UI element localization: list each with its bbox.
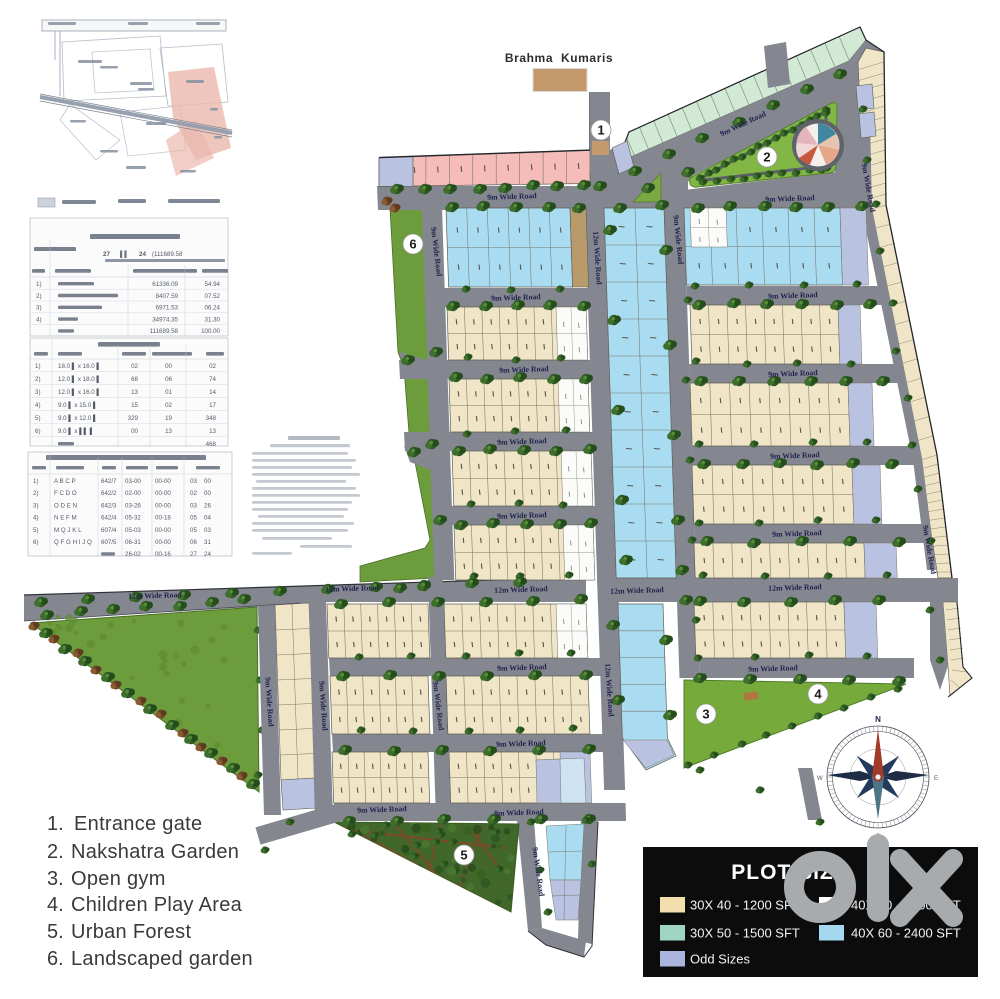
svg-text:00: 00: [204, 478, 211, 485]
svg-text:05-32: 05-32: [125, 515, 141, 522]
svg-text:13: 13: [131, 389, 138, 396]
svg-text:03-26: 03-26: [125, 502, 141, 509]
svg-text:642/2: 642/2: [101, 490, 117, 497]
svg-text:9.0 ▌ x 15.0 ▌: 9.0 ▌ x 15.0 ▌: [58, 401, 97, 409]
svg-text:4): 4): [35, 402, 41, 409]
svg-text:2): 2): [36, 293, 42, 300]
svg-text:4): 4): [36, 316, 42, 323]
svg-text:4.: 4.: [47, 894, 64, 916]
svg-text:12m Wide Road: 12m Wide Road: [610, 585, 664, 596]
svg-text:68: 68: [131, 376, 138, 383]
svg-text:1: 1: [597, 123, 604, 138]
svg-text:03: 03: [204, 527, 211, 534]
svg-text:12m Wide Road: 12m Wide Road: [128, 590, 182, 601]
svg-text:61336.09: 61336.09: [152, 281, 178, 288]
svg-text:01: 01: [165, 389, 172, 396]
svg-text:31: 31: [204, 539, 211, 546]
svg-text:3): 3): [35, 389, 41, 396]
svg-text:27: 27: [190, 551, 197, 558]
svg-text:9m Wide Road: 9m Wide Road: [494, 807, 544, 818]
svg-text:348: 348: [206, 415, 217, 422]
svg-text:15: 15: [131, 402, 138, 409]
svg-text:6: 6: [409, 237, 416, 252]
svg-text:6971.53: 6971.53: [156, 305, 179, 312]
svg-text:3: 3: [702, 707, 709, 722]
svg-text:02: 02: [209, 363, 216, 370]
svg-text:▌▌: ▌▌: [120, 250, 129, 258]
svg-text:O D E N: O D E N: [54, 502, 77, 509]
svg-text:40X 60 - 2400 SFT: 40X 60 - 2400 SFT: [851, 926, 961, 941]
svg-text:24: 24: [204, 551, 211, 558]
svg-text:5: 5: [460, 848, 467, 863]
svg-text:1.: 1.: [47, 813, 64, 835]
svg-text:6): 6): [33, 539, 39, 546]
svg-text:19: 19: [165, 415, 172, 422]
svg-text:329: 329: [128, 415, 139, 422]
svg-text:Open gym: Open gym: [71, 868, 166, 890]
svg-text:05: 05: [190, 527, 197, 534]
svg-text:1): 1): [36, 281, 42, 288]
svg-text:14: 14: [209, 389, 216, 396]
svg-text:Entrance gate: Entrance gate: [74, 813, 202, 835]
svg-text:6): 6): [35, 428, 41, 435]
svg-text:12m Wide Road: 12m Wide Road: [494, 584, 548, 595]
svg-text:Landscaped garden: Landscaped garden: [71, 948, 253, 970]
svg-text:00-18: 00-18: [155, 515, 171, 522]
svg-text:9m Wide Road: 9m Wide Road: [487, 191, 537, 202]
svg-text:(111689.58: (111689.58: [152, 251, 183, 258]
svg-text:9m Wide Road: 9m Wide Road: [357, 804, 407, 815]
svg-text:3.: 3.: [47, 868, 64, 890]
svg-text:100.00: 100.00: [201, 328, 220, 335]
svg-text:Children Play Area: Children Play Area: [71, 894, 243, 916]
svg-text:Odd Sizes: Odd Sizes: [690, 952, 750, 967]
svg-text:A B C P: A B C P: [54, 478, 76, 485]
svg-text:30X 40 - 1200 SFT: 30X 40 - 1200 SFT: [690, 898, 800, 913]
svg-text:9m Wide Road: 9m Wide Road: [748, 663, 798, 674]
svg-text:05: 05: [190, 515, 197, 522]
svg-text:1): 1): [33, 478, 39, 485]
svg-text:00: 00: [165, 363, 172, 370]
svg-text:54.94: 54.94: [205, 281, 221, 288]
svg-text:9m Wide Road: 9m Wide Road: [491, 292, 541, 303]
svg-text:2: 2: [763, 150, 770, 165]
svg-text:03-00: 03-00: [125, 478, 141, 485]
svg-text:W: W: [817, 776, 823, 782]
svg-text:06: 06: [165, 376, 172, 383]
svg-text:9m Wide Road: 9m Wide Road: [497, 662, 547, 673]
svg-text:9m Wide Road: 9m Wide Road: [768, 290, 818, 301]
svg-text:00: 00: [131, 428, 138, 435]
svg-text:Nakshatra Garden: Nakshatra Garden: [71, 841, 239, 863]
svg-text:642/3: 642/3: [101, 502, 117, 509]
svg-text:00-16: 00-16: [155, 551, 171, 558]
svg-text:9m Wide Road: 9m Wide Road: [496, 738, 546, 749]
svg-text:18.0 ▌ x 16.0 ▌: 18.0 ▌ x 16.0 ▌: [58, 362, 101, 370]
svg-text:4: 4: [814, 687, 822, 702]
svg-text:12m Wide Road: 12m Wide Road: [325, 583, 379, 594]
svg-text:06-31: 06-31: [125, 539, 141, 546]
svg-text:5): 5): [35, 415, 41, 422]
svg-text:07.52: 07.52: [205, 293, 221, 300]
svg-text:607/5: 607/5: [101, 539, 117, 546]
svg-text:F C D O: F C D O: [54, 490, 77, 497]
svg-text:642/4: 642/4: [101, 515, 117, 522]
svg-text:17: 17: [209, 402, 216, 409]
svg-text:9.0 ▌ x 12.0 ▌: 9.0 ▌ x 12.0 ▌: [58, 414, 97, 422]
svg-text:00-00: 00-00: [155, 502, 171, 509]
svg-text:Q F G H I J Q: Q F G H I J Q: [54, 539, 92, 546]
svg-text:04: 04: [204, 515, 211, 522]
svg-text:3): 3): [36, 305, 42, 312]
svg-text:13: 13: [165, 428, 172, 435]
svg-text:34974.35: 34974.35: [152, 316, 178, 323]
svg-text:E: E: [934, 776, 938, 782]
svg-text:06: 06: [190, 539, 197, 546]
svg-text:2): 2): [33, 490, 39, 497]
svg-text:N: N: [875, 715, 881, 724]
svg-text:03: 03: [190, 478, 197, 485]
svg-text:27: 27: [103, 251, 110, 258]
svg-text:Brahma Kumaris: Brahma Kumaris: [505, 51, 613, 65]
svg-text:26-02: 26-02: [125, 551, 141, 558]
svg-text:02: 02: [165, 402, 172, 409]
svg-text:26: 26: [204, 502, 211, 509]
svg-text:111689.58: 111689.58: [150, 328, 179, 335]
svg-text:9m Wide Road: 9m Wide Road: [499, 364, 549, 375]
svg-text:12.0 ▌ x 18.0 ▌: 12.0 ▌ x 18.0 ▌: [58, 375, 101, 383]
svg-text:9m Wide Road: 9m Wide Road: [772, 528, 822, 539]
svg-text:02-00: 02-00: [125, 490, 141, 497]
svg-text:9m Wide Road: 9m Wide Road: [497, 510, 547, 521]
svg-text:9m Wide Road: 9m Wide Road: [770, 450, 820, 461]
svg-text:03: 03: [190, 502, 197, 509]
svg-text:00: 00: [204, 490, 211, 497]
svg-text:9m Wide Road: 9m Wide Road: [768, 368, 818, 379]
svg-text:Urban Forest: Urban Forest: [71, 921, 191, 943]
svg-text:24: 24: [139, 251, 146, 258]
svg-text:9m Wide Road: 9m Wide Road: [497, 436, 547, 447]
svg-text:00-00: 00-00: [155, 527, 171, 534]
svg-text:12.0 ▌ x 16.0 ▌: 12.0 ▌ x 16.0 ▌: [58, 388, 101, 396]
svg-text:9m Wide Road: 9m Wide Road: [765, 193, 815, 204]
svg-text:00-00: 00-00: [155, 478, 171, 485]
svg-text:3): 3): [33, 502, 39, 509]
svg-text:468: 468: [206, 441, 217, 448]
svg-text:5): 5): [33, 527, 39, 534]
svg-text:9.0 ▌ x ▌▌ ▌: 9.0 ▌ x ▌▌ ▌: [58, 427, 94, 435]
svg-text:13: 13: [209, 428, 216, 435]
svg-text:4): 4): [33, 515, 39, 522]
svg-text:02: 02: [190, 490, 197, 497]
svg-text:74: 74: [209, 376, 216, 383]
svg-text:06.24: 06.24: [205, 305, 221, 312]
svg-text:M Q J K L: M Q J K L: [54, 527, 82, 534]
svg-text:00-00: 00-00: [155, 539, 171, 546]
svg-text:N E F M: N E F M: [54, 515, 77, 522]
svg-text:642/7: 642/7: [101, 478, 117, 485]
svg-text:6.: 6.: [47, 948, 64, 970]
svg-text:1): 1): [35, 363, 41, 370]
svg-text:31.30: 31.30: [205, 316, 221, 323]
svg-text:05-03: 05-03: [125, 527, 141, 534]
svg-text:02: 02: [131, 363, 138, 370]
svg-text:5.: 5.: [47, 921, 64, 943]
svg-text:12m Wide Road: 12m Wide Road: [768, 582, 822, 593]
svg-text:607/4: 607/4: [101, 527, 117, 534]
svg-text:2): 2): [35, 376, 41, 383]
svg-text:00-00: 00-00: [155, 490, 171, 497]
svg-text:30X 50 - 1500 SFT: 30X 50 - 1500 SFT: [690, 926, 800, 941]
svg-text:2.: 2.: [47, 841, 64, 863]
svg-text:8407.59: 8407.59: [156, 293, 179, 300]
